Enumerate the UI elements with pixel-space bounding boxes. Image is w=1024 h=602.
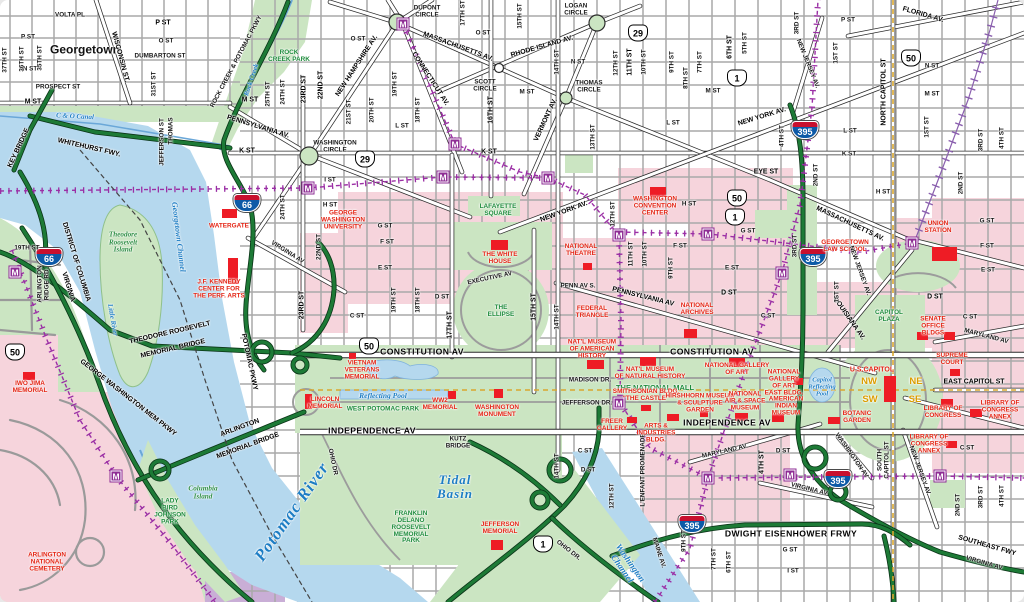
map-label-3rd-st: 3RD ST xyxy=(979,486,986,508)
map-label-18th-st: 18TH ST xyxy=(416,97,423,122)
interstate-shield-395: 395 xyxy=(792,121,819,139)
map-label-i-st: I ST xyxy=(324,178,336,185)
us-route-shield-1: 1 xyxy=(727,70,747,87)
map-label-federal-triangle: FEDERAL TRIANGLE xyxy=(576,306,609,320)
map-label-24th-st: 24TH ST xyxy=(281,79,288,104)
map-label-4th-st: 4TH ST xyxy=(1000,127,1007,149)
map-label-lincoln-memorial: LINCOLN MEMORIAL xyxy=(308,397,343,411)
map-label-g-st: G ST xyxy=(980,219,995,226)
map-label-2nd-st: 2ND ST xyxy=(814,164,821,186)
map-label-connecticut-av: CONNECTICUT AV. xyxy=(410,51,450,107)
map-label-jefferson-memorial: JEFFERSON MEMORIAL xyxy=(481,522,519,536)
map-label-southeast-fwy: SOUTHEAST FWY xyxy=(957,534,1016,558)
map-label-35th-st: 35TH ST xyxy=(38,45,45,70)
map-label-g-st: G ST xyxy=(783,548,798,555)
map-label-p-st: P ST xyxy=(155,19,170,26)
map-label-rock-creek-potomac-pkwy: ROCK CREEK & POTOMAC PKWY xyxy=(210,15,264,109)
map-label-library-of-congress-annex: LIBRARY OF CONGRESS ANNEX xyxy=(981,401,1020,422)
map-label-maine-av: MAINE AV. xyxy=(650,537,666,569)
map-label-massachusetts-av: MASSACHUSETTS AV. xyxy=(422,31,494,63)
map-label-nat-l-museum-of-american-history: NAT'L MUSEUM OF AMERICAN HISTORY xyxy=(568,340,616,361)
map-label-1st-st: 1ST ST xyxy=(835,281,842,302)
map-label-constitution-av: CONSTITUTION AV xyxy=(380,347,464,356)
map-label-16th-st: 16TH ST xyxy=(487,96,494,124)
map-label-national-archives: NATIONAL ARCHIVES xyxy=(680,303,713,317)
map-label-g-st: G ST xyxy=(378,224,393,231)
map-label-9th-st: 9TH ST xyxy=(682,530,689,552)
map-label-maryland-av: MARYLAND AV xyxy=(963,328,1009,346)
map-label-ohio-dr: OHIO DR xyxy=(326,448,338,476)
map-label-south-capitol-st: SOUTH CAPITOL ST xyxy=(877,441,890,478)
metro-station-icon: M xyxy=(450,139,461,150)
us-route-shield-29: 29 xyxy=(628,25,648,42)
map-label-h-st: H ST xyxy=(323,203,337,210)
map-label-pennsylvania-av: PENNSYLVANIA AV. xyxy=(226,114,290,140)
map-label-m-st: M ST xyxy=(25,98,41,105)
map-label-memorial-bridge: MEMORIAL BRIDGE xyxy=(140,338,206,360)
map-label-h-st: H ST xyxy=(682,202,696,209)
map-label-potomac-pkwy: POTOMAC PKWY xyxy=(239,333,258,391)
map-label-21st-st: 21ST ST xyxy=(347,100,354,125)
map-label-dwight-eisenhower-frwy: DWIGHT EISENHOWER FRWY xyxy=(725,529,857,538)
map-label-national-air-space-museum: NATIONAL AIR & SPACE MUSEUM xyxy=(725,392,766,413)
map-label-lafayette-square: LAFAYETTE SQUARE xyxy=(480,204,517,218)
map-label-12th-st: 12TH ST xyxy=(614,50,621,75)
map-label-lady-bird-johnson-park: LADY BIRD JOHNSON PARK xyxy=(154,498,186,525)
map-label-eye-st: EYE ST xyxy=(754,168,779,175)
map-label-west-potomac-park: WEST POTOMAC PARK xyxy=(347,407,419,414)
map-label-louisiana-av: LOUISIANA AV. xyxy=(832,297,867,342)
map-label-19th-st: 19TH ST xyxy=(392,287,399,312)
map-label-10th-st: 10TH ST xyxy=(642,49,649,74)
map-label-logan-circle: LOGAN CIRCLE xyxy=(564,3,587,16)
map-label-supreme-court: SUPREME COURT xyxy=(936,353,968,367)
map-label-n-st: N ST xyxy=(23,67,37,74)
map-label-arlington-ridge-rd: ARLINGTON RIDGE RD. xyxy=(37,265,50,302)
map-label-j-f-kennedy-center-for-the-perf-arts: J.F. KENNEDY CENTER FOR THE PERF. ARTS xyxy=(193,280,245,301)
map-label-14th-st: 14TH ST xyxy=(555,304,562,329)
map-label-18th-st: 18TH ST xyxy=(416,287,423,312)
map-label-15th-st: 15TH ST xyxy=(530,293,537,321)
interstate-shield-66: 66 xyxy=(36,248,63,266)
map-label-national-gallery-of-art-east-bldg: NATIONAL GALLERY OF ART EAST BLDG. xyxy=(765,369,804,396)
metro-station-icon: M xyxy=(614,398,625,409)
map-label-37th-st: 37TH ST xyxy=(3,47,10,72)
map-label-13th-st: 13TH ST xyxy=(591,124,598,149)
map-label-d-st: D ST xyxy=(776,449,790,456)
map-label-h-st: H ST xyxy=(876,190,890,197)
map-label-12th-st: 12TH ST xyxy=(611,201,618,226)
map-label-9th-st: 9TH ST xyxy=(670,51,677,73)
map-label-4th-st: 4TH ST xyxy=(758,450,765,474)
map-label-george-washington-mem-pkwy: GEORGE WASHINGTON MEM PKWY xyxy=(78,358,177,438)
metro-station-icon: M xyxy=(703,473,714,484)
map-label-14th-st: 14TH ST xyxy=(555,49,562,74)
map-label-washington-circle: WASHINGTON CIRCLE xyxy=(313,140,356,153)
metro-station-icon: M xyxy=(785,470,796,481)
map-label-district-of-columbia: DISTRICT OF COLUMBIA xyxy=(60,222,91,303)
map-label-c-st: C ST xyxy=(963,315,977,322)
map-label-c-st: C ST xyxy=(350,314,364,321)
metro-station-icon: M xyxy=(398,19,409,30)
map-label-washington-monument: WASHINGTON MONUMENT xyxy=(475,405,519,419)
map-label-p-st: P ST xyxy=(841,18,855,25)
map-label-virginia-av: VIRGINIA AV xyxy=(790,482,828,498)
metro-station-icon: M xyxy=(703,229,714,240)
map-label-nw: NW xyxy=(861,377,877,387)
map-label-e-st: E ST xyxy=(725,266,739,273)
map-label-memorial-bridge: MEMORIAL BRIDGE xyxy=(216,431,281,461)
map-label-11th-st: 11TH ST xyxy=(626,48,633,75)
map-label-florida-av: FLORIDA AV. xyxy=(902,6,945,25)
map-label-reflecting-pool: Reflecting Pool xyxy=(359,392,407,400)
map-label-madison-dr: MADISON DR. xyxy=(569,378,611,385)
map-label-f-st: F ST xyxy=(380,240,394,247)
map-label-o-st: O ST xyxy=(351,37,366,44)
metro-station-icon: M xyxy=(614,230,625,241)
map-label-new-jersey-av: NEW JERSEY AV. xyxy=(907,445,931,496)
map-label-nat-l-museum-of-natural-history: NAT'L MUSEUM OF NATURAL HISTORY xyxy=(615,367,686,381)
map-label-botanic-garden: BOTANIC GARDEN xyxy=(843,411,872,425)
map-label-washington-channel: Washington Channel xyxy=(605,542,646,589)
map-label-east-capitol-st: EAST CAPITOL ST xyxy=(943,378,1004,385)
map-label-e-st: E ST xyxy=(378,266,392,273)
map-label-national-gallery-of-art: NATIONAL GALLERY OF ART xyxy=(705,363,770,377)
map-label-17th-st: 17TH ST xyxy=(461,0,468,25)
metro-station-icon: M xyxy=(907,238,918,249)
metro-station-icon: M xyxy=(111,471,122,482)
map-label-c-st: C ST xyxy=(578,449,592,456)
map-label-c-st: C ST xyxy=(960,446,974,453)
map-label-m-st: M ST xyxy=(519,90,534,97)
map-label-d-st: D ST xyxy=(435,295,449,302)
map-label-georgetown-channel: Georgetown Channel xyxy=(169,202,186,273)
us-route-shield-1: 1 xyxy=(725,209,745,226)
map-label-union-station: UNION STATION xyxy=(924,221,951,235)
map-label-k-st: K ST xyxy=(842,152,856,159)
map-label-georgetown-law-school: GEORGETOWN LAW SCHOOL xyxy=(821,240,868,254)
map-label-k-st: K ST xyxy=(239,147,255,154)
map-label-vermont-av: VERMONT AV. xyxy=(533,97,559,142)
map-label-23rd-st: 23RD ST xyxy=(298,291,305,319)
map-label-virginia-av: VIRGINIA AV xyxy=(965,556,1003,573)
map-label-p-st: P ST xyxy=(21,35,35,42)
map-label-ne: NE xyxy=(909,377,922,387)
map-label-thomas-circle: THOMAS CIRCLE xyxy=(575,80,602,93)
map-label-watergate: WATERGATE xyxy=(209,224,249,231)
map-label-franklin-delano-roosevelt-memorial-park: FRANKLIN DELANO ROOSEVELT MEMORIAL PARK xyxy=(392,511,431,545)
map-label-8th-st: 8TH ST xyxy=(684,67,691,89)
map-label-virginia: VIRGINIA xyxy=(60,271,76,302)
map-label-2nd-st: 2ND ST xyxy=(959,172,966,194)
map-label-executive-av: EXECUTIVE AV xyxy=(467,271,513,287)
us-route-shield-50: 50 xyxy=(727,190,747,207)
interstate-shield-395: 395 xyxy=(679,515,706,533)
map-label-m-st: M ST xyxy=(924,92,939,99)
map-label-penn-av-s: PENN AV S. xyxy=(561,284,596,291)
map-label-1st-st: 1ST ST xyxy=(925,116,932,137)
map-label-national-theatre: NATIONAL THEATRE xyxy=(565,244,598,258)
us-route-shield-50: 50 xyxy=(901,50,921,67)
map-label-the-ellipse: THE ELLIPSE xyxy=(488,305,515,319)
map-label-virginia-av: VIRGINIA AV xyxy=(269,240,304,266)
map-label-m-st: M ST xyxy=(242,96,258,103)
map-label-k-st: K ST xyxy=(481,148,497,155)
label-overlay: MMMMMMMMMMMMMMM6666395395395395505050501… xyxy=(0,0,1024,602)
map-label-dupont-circle: DUPONT CIRCLE xyxy=(414,5,441,18)
map-label-ww2-memorial: WW2 MEMORIAL xyxy=(423,398,458,412)
us-route-shield-29: 29 xyxy=(355,151,375,168)
map-label-arlington-national-cemetery: ARLINGTON NATIONAL CEMETERY xyxy=(28,553,66,574)
map-label-the-white-house: THE WHITE HOUSE xyxy=(482,252,517,266)
map-label-rock-creek-park: ROCK CREEK PARK xyxy=(268,50,310,64)
map-label-f-st: F ST xyxy=(980,244,994,251)
map-label-22nd-st: 22ND ST xyxy=(317,71,324,99)
metro-station-icon: M xyxy=(438,172,449,183)
map-label-7th-st: 7TH ST xyxy=(712,548,719,570)
map-label-u-s-capitol: U.S.CAPITOL xyxy=(850,366,894,373)
map-label-se: SE xyxy=(909,395,922,405)
map-label-4th-st: 4TH ST xyxy=(1000,485,1007,507)
map-label-new-york-av: NEW YORK AV. xyxy=(539,200,588,224)
map-label-l-st: L ST xyxy=(843,129,857,136)
map-label-capitol-plaza: CAPITOL PLAZA xyxy=(875,310,903,324)
map-label-new-hampshire-av: NEW HAMPSHIRE AV. xyxy=(334,34,379,98)
map-label-george-washington-university: GEORGE WASHINGTON UNIVERSITY xyxy=(321,211,365,232)
map-label-31st-st: 31ST ST xyxy=(152,72,159,97)
metro-station-icon: M xyxy=(777,268,788,279)
map-label-20th-st: 20TH ST xyxy=(370,97,377,122)
map-label-freer-gallery: FREER GALLERY xyxy=(597,419,627,433)
map-label-24th-st: 24TH ST xyxy=(281,194,288,219)
interstate-shield-395: 395 xyxy=(800,248,827,266)
map-label-the-national-mall: THE NATIONAL MALL xyxy=(616,384,694,392)
map-label-independence-av: INDEPENDENCE AV xyxy=(683,418,771,427)
map-label-c-o-canal: C & O Canal xyxy=(56,112,94,121)
map-label-9th-st: 9TH ST xyxy=(669,257,676,279)
map-label-north-capitol-st: NORTH CAPITOL ST xyxy=(880,58,887,125)
map-label-senate-office-bldgs: SENATE OFFICE BLDGS xyxy=(920,317,945,338)
washington-dc-street-map[interactable]: MMMMMMMMMMMMMMM6666395395395395505050501… xyxy=(0,0,1024,602)
map-label-19th-st: 19TH ST xyxy=(393,71,400,96)
map-label-4th-st: 4TH ST xyxy=(780,125,787,147)
map-label-14th-st: 14TH ST xyxy=(555,453,562,478)
map-label-scott-circle: SCOTT CIRCLE xyxy=(473,79,496,92)
map-label-e-st: E ST xyxy=(981,268,995,275)
map-label-36th-st: 36TH ST xyxy=(20,46,27,71)
map-label-library-of-congress-annex: LIBRARY OF CONGRESS ANNEX xyxy=(910,435,949,456)
map-label-o-st: O ST xyxy=(476,31,491,38)
map-label-f-st: F ST xyxy=(673,244,687,251)
map-label-sw: SW xyxy=(862,395,877,405)
us-route-shield-50: 50 xyxy=(359,338,379,355)
map-label-new-jersey-av: NEW JERSEY AV. xyxy=(847,245,871,296)
map-label-3rd-st: 3RD ST xyxy=(793,235,800,257)
map-label-3rd-st: 3RD ST xyxy=(795,12,802,34)
map-label-vietnam-veterans-memorial: VIETNAM VETERANS MEMORIAL xyxy=(345,361,380,382)
map-label-17th-st: 17TH ST xyxy=(446,311,453,339)
map-label-i-st: I ST xyxy=(787,569,799,576)
map-label-thomas: THOMAS xyxy=(169,117,176,144)
interstate-shield-395: 395 xyxy=(825,470,852,488)
us-route-shield-50: 50 xyxy=(5,344,25,361)
map-label-kutz-bridge: KUTZ BRIDGE xyxy=(446,436,471,449)
us-route-shield-1: 1 xyxy=(533,536,553,553)
map-label-7th-st: 7TH ST xyxy=(698,51,705,73)
map-label-25th-st: 25TH ST xyxy=(266,81,273,106)
map-label-key-bridge: KEY BRIDGE xyxy=(7,127,32,169)
map-label-n-st: N ST xyxy=(925,64,939,71)
map-label-5th-st: 5TH ST xyxy=(743,32,750,54)
map-label-2nd-st: 2ND ST xyxy=(956,494,963,516)
map-label-dumbarton-st: DUMBARTON ST xyxy=(135,54,186,61)
map-label-12th-st: 12TH ST xyxy=(610,483,617,508)
map-label-capitol-reflecting-pool: Capitol Reflecting Pool xyxy=(808,378,835,399)
map-label-hirshhorn-museum-sculpture-garden: HIRSHHORN MUSEUM & SCULPTURE GARDEN xyxy=(666,394,735,415)
map-label-rock-creek: Rock Creek xyxy=(243,63,261,97)
metro-station-icon: M xyxy=(935,471,946,482)
map-label-new-york-av: NEW YORK AV. xyxy=(737,106,787,128)
map-label-m-st: M ST xyxy=(705,89,720,96)
map-label-arlington: ARLINGTON xyxy=(220,418,261,439)
map-label-tidal-basin: Tidal Basin xyxy=(437,473,473,501)
map-label-n-st: N ST xyxy=(571,60,585,67)
map-label-11th-st: 11TH ST xyxy=(629,242,636,267)
map-label-6th-st: 6TH ST xyxy=(727,551,734,573)
map-label-arts-industries-bldg: ARTS & INDUSTRIES BLDG. xyxy=(637,424,676,445)
map-label-jefferson-st: JEFFERSON ST xyxy=(160,118,167,166)
map-label-whitehurst-fwy: WHITEHURST FWY. xyxy=(57,137,121,159)
map-label-o-st: O ST xyxy=(159,39,174,46)
map-label-wisconsin-st: WISCONSIN ST. xyxy=(110,31,131,83)
map-label-georgetown: Georgetown xyxy=(50,44,120,57)
map-label-prospect-st: PROSPECT ST xyxy=(36,85,80,92)
metro-station-icon: M xyxy=(303,183,314,194)
map-label-theodore-roosevelt: THEODORE ROOSEVELT xyxy=(129,320,211,346)
map-label-massachusetts-av: MASSACHUSETTS AV. xyxy=(815,205,885,243)
map-label-g-st: G ST xyxy=(741,229,756,236)
map-label-l-st: L ST xyxy=(666,121,680,128)
map-label-c-st: C ST xyxy=(761,314,775,321)
map-label-constitution-av: CONSTITUTION AV xyxy=(670,347,754,356)
map-label-d-st: D ST xyxy=(721,289,737,296)
map-label-3rd-st: 3RD ST xyxy=(979,129,986,151)
map-label-american-indian-museum: AMERICAN INDIAN MUSEUM xyxy=(769,397,803,418)
map-label-1st-st: 1ST ST xyxy=(834,42,841,63)
map-label-new-jersey-av: NEW JERSEY AV. xyxy=(794,39,820,90)
map-label-iwo-jima-memorial: IWO JIMA MEMORIAL xyxy=(13,381,48,395)
map-label-maryland-av: MARYLAND AV. xyxy=(701,443,748,460)
map-label-15th-st: 15TH ST xyxy=(518,3,525,28)
interstate-shield-66: 66 xyxy=(234,194,261,212)
map-label-columbia-island: Columbia Island xyxy=(188,485,217,500)
metro-station-icon: M xyxy=(10,267,21,278)
map-label-potomac-river: Potomac River xyxy=(251,459,333,565)
map-label-l-st: L ST xyxy=(395,124,409,131)
map-label-theodore-roosevelt-island: Theodore Roosevelt Island xyxy=(109,231,137,254)
map-label-little-river: Little River xyxy=(105,303,118,336)
map-label-independence-av: INDEPENDENCE AV xyxy=(328,426,416,435)
map-label-l-enfant-promenade: L'ENFANT PROMENADE xyxy=(641,433,648,506)
map-label-6th-st: 6TH ST xyxy=(726,35,733,59)
map-label-library-of-congress: LIBRARY OF CONGRESS xyxy=(924,406,963,420)
metro-station-icon: M xyxy=(543,173,554,184)
map-label-d-st: D ST xyxy=(927,293,943,300)
map-label-washington-convention-center: WASHINGTON CONVENTION CENTER xyxy=(633,197,677,218)
map-label-22nd-st: 22ND ST xyxy=(317,234,324,260)
map-label-d-st: D ST xyxy=(581,468,595,475)
map-label-10th-st: 10TH ST xyxy=(643,241,650,266)
map-label-volta-pl: VOLTA PL xyxy=(55,13,85,20)
map-label-23rd-st: 23RD ST xyxy=(300,75,307,103)
map-label-jefferson-dr: JEFFERSON DR. xyxy=(562,401,612,408)
map-label-pennsylvania-av: PENNSYLVANIA AV xyxy=(611,286,674,309)
map-label-rhode-island-av: RHODE ISLAND AV. xyxy=(510,35,574,60)
map-label-ohio-dr: OHIO DR. xyxy=(555,540,582,563)
